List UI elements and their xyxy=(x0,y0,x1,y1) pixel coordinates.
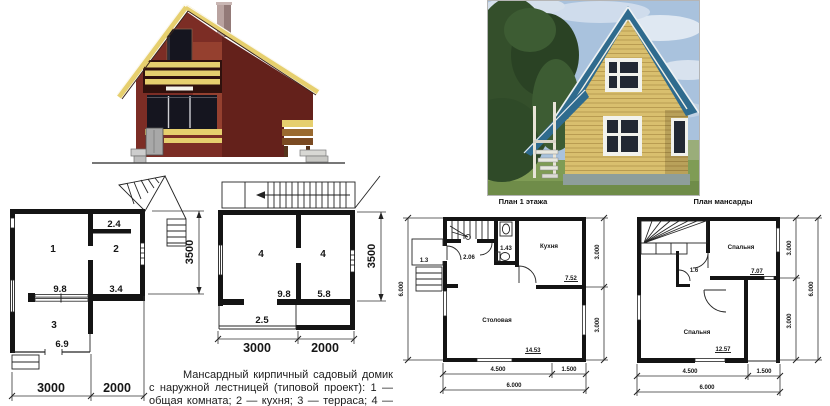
dim-bottom: 3000 2000 xyxy=(9,296,147,401)
hall-area: 2.06 xyxy=(463,255,475,261)
terrace-outline xyxy=(12,334,90,369)
area-right: 5.8 xyxy=(317,289,330,300)
title-plan-floor1: План 1 этажа xyxy=(468,197,578,206)
windows xyxy=(442,291,587,363)
bed1-label: Спальня xyxy=(728,244,755,251)
room4-right: 4 xyxy=(320,249,326,260)
closet-area: 1.6 xyxy=(690,268,699,274)
stairs xyxy=(450,221,488,239)
walls xyxy=(443,217,586,362)
dim-r1: 3.000 xyxy=(787,240,793,256)
dim-right: 3.000 3.000 6.000 xyxy=(780,215,822,363)
entry-steps xyxy=(131,149,146,163)
area-balcony: 2.5 xyxy=(255,315,269,326)
dim-right: 3.000 3.000 xyxy=(586,215,608,363)
dim-r2: 3.000 xyxy=(787,313,793,329)
dim-r2: 3.000 xyxy=(595,317,601,333)
dim-2000: 2000 xyxy=(311,341,339,355)
stairs-band xyxy=(222,176,380,208)
dim-3000: 3000 xyxy=(243,341,271,355)
area-left: 9.8 xyxy=(277,289,290,300)
stairs xyxy=(641,221,707,254)
room-labels: Спальня 7.07 1.6 Спальня 12.57 xyxy=(684,244,764,353)
room4-left: 4 xyxy=(258,249,264,260)
dim-left: 6.000 xyxy=(399,215,443,363)
walls xyxy=(218,210,355,330)
dim-b1: 4.500 xyxy=(490,367,506,373)
dim-right-total: 6.000 xyxy=(809,281,815,297)
doors xyxy=(679,253,726,312)
dim-height: 3500 xyxy=(148,211,204,294)
wc-area: 1.43 xyxy=(500,246,512,252)
title-plan-attic: План мансарды xyxy=(668,197,778,206)
attic-window xyxy=(605,58,642,92)
dim-3500: 3500 xyxy=(366,244,378,268)
plan-floor1-drawing: Кухня 7.52 2.06 1.43 1.3 Столовая 14.53 … xyxy=(396,208,608,406)
room1-label: 1 xyxy=(50,244,56,255)
dim-bottom: 4.500 1.500 6.000 xyxy=(440,363,589,394)
main-window-photo xyxy=(603,116,642,156)
dim-total: 6.000 xyxy=(506,383,522,389)
plan-attic-drawing: Спальня 7.07 1.6 Спальня 12.57 3.000 3.0… xyxy=(628,208,830,406)
room3-label: 3 xyxy=(51,320,57,331)
area-mid: 9.8 xyxy=(53,284,66,295)
balcony-slats xyxy=(143,60,222,93)
stairs-arrow xyxy=(256,191,265,199)
kitchen-label: Кухня xyxy=(540,243,558,250)
bathroom-fixtures xyxy=(496,222,512,261)
dim-total: 6.000 xyxy=(699,385,715,391)
dim-b1: 4.500 xyxy=(682,369,698,375)
dim-b2: 1.500 xyxy=(756,369,772,375)
area-terrace: 6.9 xyxy=(55,339,68,350)
figure-caption: Мансардный кирпичный садовый домик с нар… xyxy=(149,369,393,406)
walls xyxy=(10,209,145,353)
room-labels: 1 2 3 2.4 9.8 3.4 6.9 xyxy=(50,219,123,350)
dim-height: 3500 xyxy=(357,212,386,301)
bed2-label: Спальня xyxy=(684,329,711,336)
dim-bottom: 4.500 1.500 6.000 xyxy=(634,364,783,396)
dim-2000: 2000 xyxy=(103,381,131,395)
entry-door xyxy=(146,128,163,155)
side-door xyxy=(671,118,688,156)
main-window xyxy=(147,95,217,129)
room-labels: 4 4 9.8 5.8 2.5 xyxy=(255,249,330,326)
dim-bottom: 3000 2000 xyxy=(215,331,357,355)
elevation-drawing xyxy=(85,0,350,172)
porch-area: 1.3 xyxy=(420,258,429,264)
windows xyxy=(219,245,355,275)
dim-b2: 1.500 xyxy=(561,367,577,373)
dim-left-6000: 6.000 xyxy=(399,281,405,297)
doors xyxy=(442,243,536,283)
room2-label: 2 xyxy=(113,244,119,255)
terrace-bench xyxy=(282,120,328,162)
photo xyxy=(487,0,700,196)
area-vestibule: 2.4 xyxy=(107,219,121,230)
dining-label: Столовая xyxy=(482,317,512,324)
porch xyxy=(412,239,443,291)
dim-3000: 3000 xyxy=(37,381,65,395)
area-kitchen: 3.4 xyxy=(109,284,123,295)
scanned-page: 1 2 3 2.4 9.8 3.4 6.9 3500 3000 2000 xyxy=(0,0,830,406)
dim-r1: 3.000 xyxy=(595,244,601,260)
dim-3500: 3500 xyxy=(184,240,196,264)
sill-band-2 xyxy=(164,138,222,143)
plan-left-attic: 4 4 9.8 5.8 2.5 3500 3000 2000 xyxy=(212,170,390,356)
